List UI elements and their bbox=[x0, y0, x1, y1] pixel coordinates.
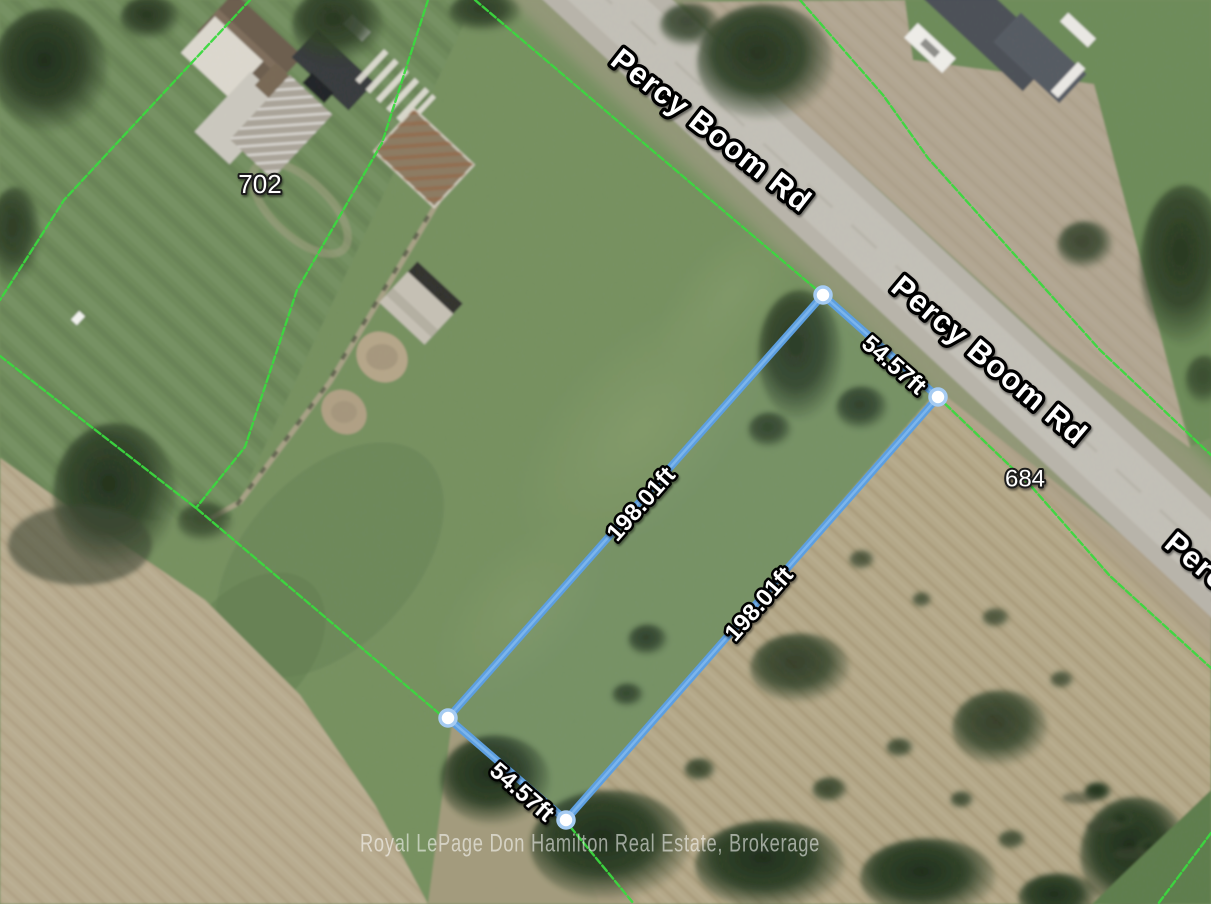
lot-vertex-handle[interactable] bbox=[440, 710, 456, 726]
address-label-684: 684 bbox=[1005, 465, 1045, 492]
satellite-map-view: Percy Boom Rd Percy Boom Rd Percy Boom R… bbox=[0, 0, 1211, 904]
lot-vertex-handle[interactable] bbox=[558, 812, 574, 828]
lot-vertex-handle[interactable] bbox=[930, 389, 946, 405]
lot-vertex-handle[interactable] bbox=[815, 287, 831, 303]
address-label-702: 702 bbox=[238, 169, 281, 199]
brokerage-watermark: Royal LePage Don Hamilton Real Estate, B… bbox=[360, 830, 820, 858]
map-canvas: Percy Boom Rd Percy Boom Rd Percy Boom R… bbox=[0, 0, 1211, 904]
